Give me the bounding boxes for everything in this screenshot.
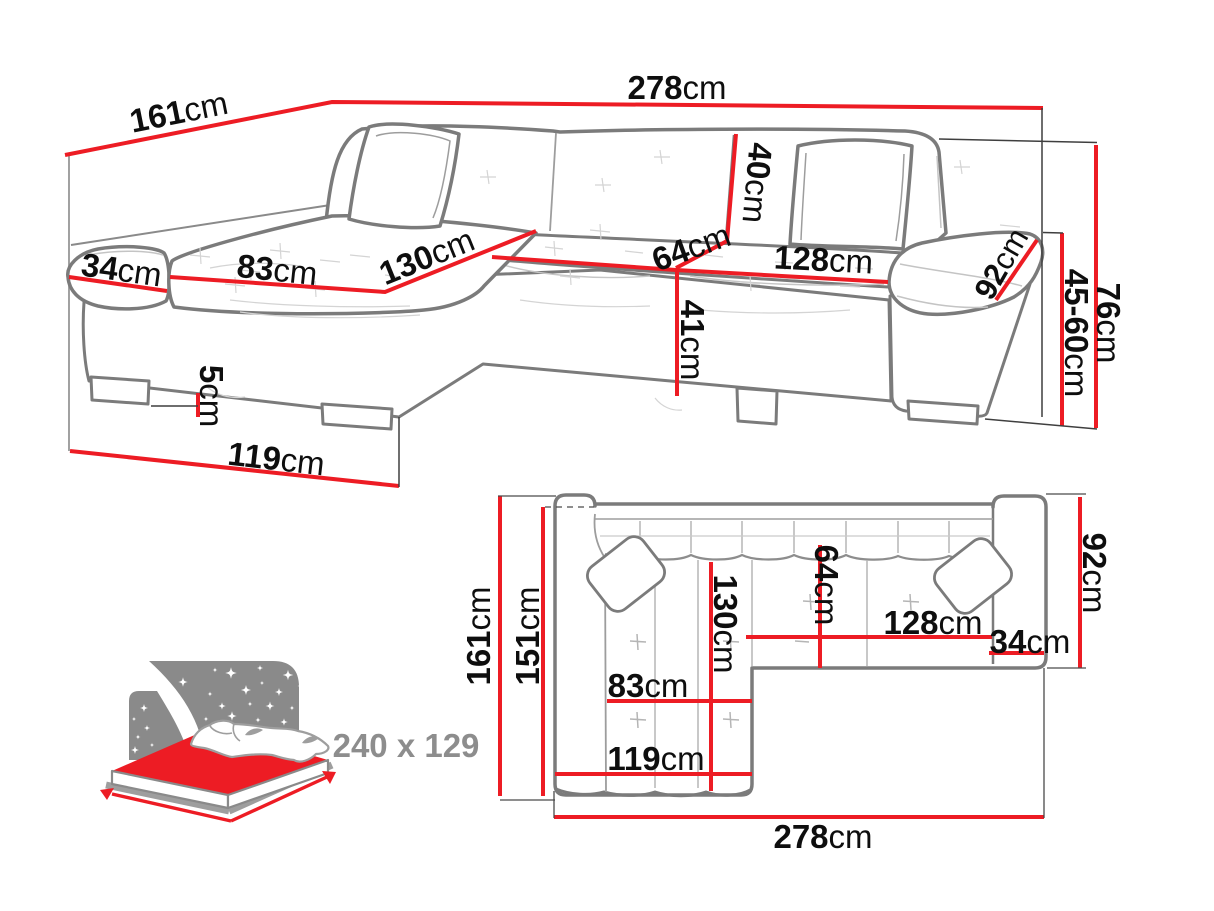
svg-text:240 x 129: 240 x 129 [333,727,480,764]
svg-text:40cm: 40cm [736,141,780,225]
svg-text:34cm: 34cm [990,623,1071,660]
svg-text:161cm: 161cm [460,586,497,685]
svg-text:151cm: 151cm [509,586,546,685]
svg-text:119cm: 119cm [607,740,704,777]
svg-text:92cm: 92cm [1076,533,1113,614]
svg-text:128cm: 128cm [773,238,874,280]
svg-text:278cm: 278cm [773,818,872,855]
svg-text:130cm: 130cm [707,574,744,673]
svg-text:41cm: 41cm [674,300,711,381]
svg-text:128cm: 128cm [883,604,982,641]
svg-text:5cm: 5cm [193,365,230,427]
svg-text:278cm: 278cm [627,69,726,106]
svg-text:64cm: 64cm [808,545,845,626]
svg-text:83cm: 83cm [608,667,689,704]
svg-text:45-60cm: 45-60cm [1058,269,1095,397]
